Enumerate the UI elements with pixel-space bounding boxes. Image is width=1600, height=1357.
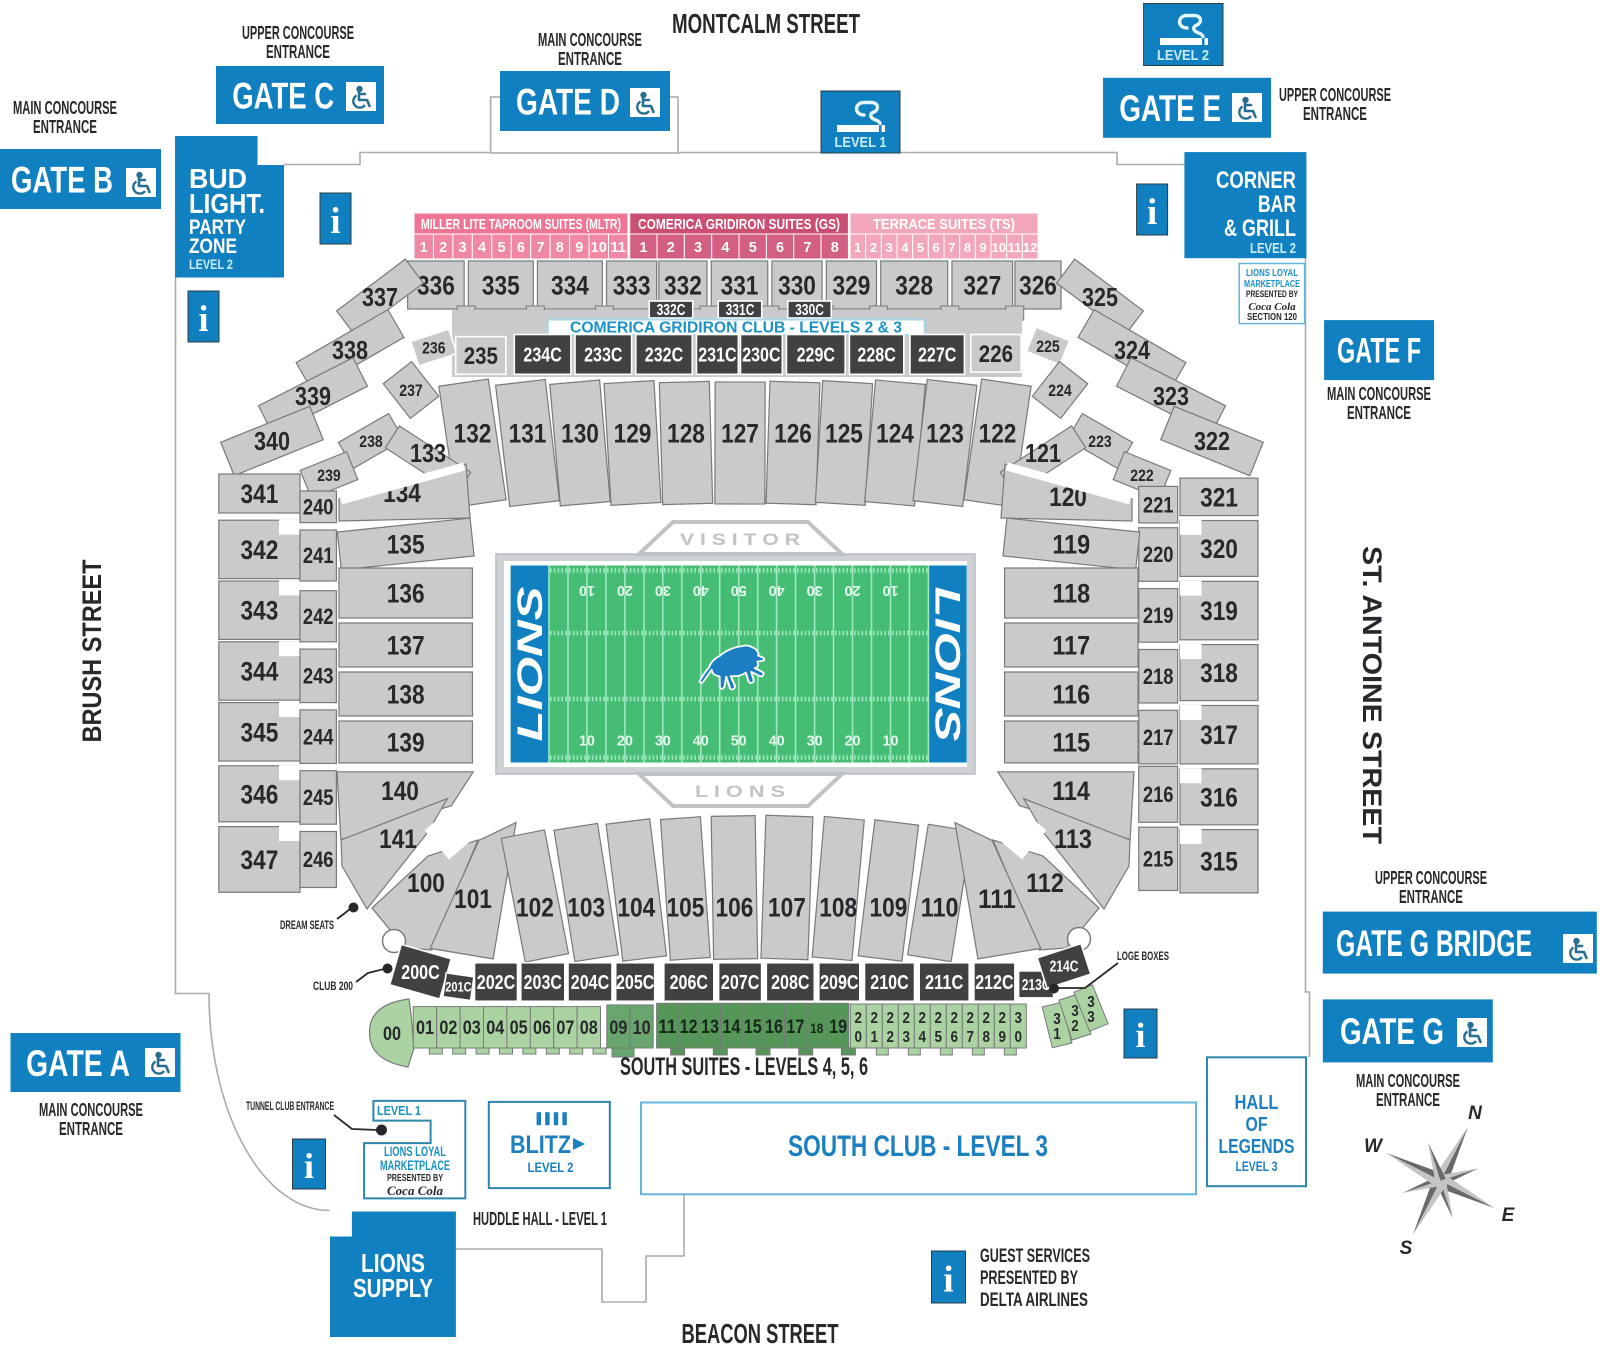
svg-text:105: 105 — [667, 892, 705, 922]
svg-text:12: 12 — [680, 1017, 698, 1038]
svg-text:3: 3 — [1015, 1010, 1023, 1027]
svg-text:9: 9 — [999, 1029, 1007, 1046]
svg-text:117: 117 — [1052, 630, 1090, 660]
svg-text:206C: 206C — [670, 971, 709, 994]
svg-text:325: 325 — [1082, 284, 1118, 312]
svg-text:UPPER CONCOURSE: UPPER CONCOURSE — [1375, 868, 1487, 888]
svg-text:30: 30 — [807, 733, 823, 750]
svg-text:CORNER: CORNER — [1216, 167, 1296, 194]
svg-text:BLITZ: BLITZ — [510, 1131, 571, 1159]
svg-text:BAR: BAR — [1258, 191, 1296, 218]
svg-text:5: 5 — [935, 1029, 943, 1046]
svg-text:329: 329 — [833, 270, 871, 300]
svg-text:233C: 233C — [584, 344, 623, 367]
svg-text:2: 2 — [855, 1010, 863, 1027]
svg-text:ENTRANCE: ENTRANCE — [266, 42, 330, 62]
svg-text:239: 239 — [317, 466, 340, 485]
svg-text:10: 10 — [579, 582, 595, 599]
svg-text:E: E — [1502, 1205, 1516, 1226]
svg-text:2: 2 — [919, 1010, 927, 1027]
svg-text:237: 237 — [399, 381, 422, 400]
svg-text:341: 341 — [241, 479, 279, 509]
svg-text:2: 2 — [667, 240, 675, 256]
svg-text:110: 110 — [921, 892, 959, 922]
svg-text:MONTCALM STREET: MONTCALM STREET — [672, 8, 860, 39]
svg-text:40: 40 — [693, 733, 709, 750]
svg-text:319: 319 — [1200, 596, 1238, 626]
svg-text:330: 330 — [778, 270, 816, 300]
svg-text:4: 4 — [901, 240, 909, 255]
svg-text:236: 236 — [422, 338, 445, 357]
svg-text:03: 03 — [463, 1018, 481, 1039]
svg-text:8: 8 — [831, 240, 839, 256]
svg-text:202C: 202C — [477, 971, 516, 994]
svg-text:103: 103 — [567, 892, 605, 922]
svg-text:2: 2 — [1071, 1018, 1079, 1035]
svg-text:336: 336 — [417, 270, 455, 300]
svg-text:20: 20 — [617, 733, 633, 750]
svg-text:1: 1 — [854, 240, 861, 255]
svg-text:10: 10 — [591, 240, 607, 256]
svg-text:0: 0 — [855, 1029, 863, 1046]
svg-text:245: 245 — [303, 785, 334, 810]
svg-text:2: 2 — [871, 1010, 879, 1027]
svg-text:2: 2 — [983, 1010, 991, 1027]
svg-text:MAIN CONCOURSE: MAIN CONCOURSE — [1356, 1071, 1460, 1091]
svg-text:209C: 209C — [820, 971, 859, 994]
svg-text:129: 129 — [614, 418, 652, 448]
svg-text:203C: 203C — [524, 971, 563, 994]
svg-text:108: 108 — [819, 892, 857, 922]
svg-text:LEVEL 2: LEVEL 2 — [1250, 240, 1296, 257]
svg-text:5: 5 — [497, 240, 505, 256]
svg-text:101: 101 — [454, 884, 492, 914]
svg-text:SUPPLY: SUPPLY — [353, 1273, 433, 1303]
svg-text:SOUTH SUITES - LEVELS 4, 5, 6: SOUTH SUITES - LEVELS 4, 5, 6 — [620, 1053, 868, 1081]
svg-text:LIONS LOYAL: LIONS LOYAL — [384, 1144, 446, 1159]
svg-text:235: 235 — [464, 343, 498, 370]
svg-text:130: 130 — [561, 418, 599, 448]
svg-text:i: i — [1136, 1016, 1146, 1055]
svg-text:230C: 230C — [742, 344, 781, 367]
svg-text:223: 223 — [1088, 432, 1111, 451]
svg-text:225: 225 — [1036, 337, 1059, 356]
svg-text:& GRILL: & GRILL — [1224, 215, 1296, 242]
svg-text:136: 136 — [387, 578, 425, 608]
svg-text:40: 40 — [769, 733, 785, 750]
svg-text:09: 09 — [609, 1018, 627, 1039]
svg-text:100: 100 — [407, 868, 445, 898]
svg-text:3: 3 — [1087, 1009, 1095, 1026]
svg-text:2: 2 — [967, 1010, 975, 1027]
svg-text:10: 10 — [579, 733, 595, 750]
svg-text:40: 40 — [693, 582, 709, 599]
svg-text:ENTRANCE: ENTRANCE — [1347, 403, 1411, 423]
svg-text:244: 244 — [303, 724, 334, 749]
svg-text:LIONS: LIONS — [927, 587, 966, 742]
svg-text:02: 02 — [439, 1018, 457, 1039]
svg-text:3: 3 — [459, 240, 467, 256]
svg-text:LEVEL 2: LEVEL 2 — [528, 1159, 574, 1175]
svg-text:MAIN CONCOURSE: MAIN CONCOURSE — [1327, 384, 1431, 404]
svg-text:316: 316 — [1200, 782, 1238, 812]
svg-text:LEVEL 1: LEVEL 1 — [835, 134, 887, 151]
svg-text:112: 112 — [1026, 868, 1064, 898]
svg-text:323: 323 — [1153, 383, 1189, 411]
svg-text:240: 240 — [303, 494, 334, 519]
svg-text:334: 334 — [551, 270, 589, 300]
svg-text:N: N — [1468, 1103, 1483, 1124]
svg-text:UPPER CONCOURSE: UPPER CONCOURSE — [242, 23, 354, 43]
svg-text:3: 3 — [694, 240, 702, 256]
svg-text:07: 07 — [556, 1018, 574, 1039]
svg-text:ENTRANCE: ENTRANCE — [1303, 104, 1367, 124]
svg-text:228C: 228C — [857, 344, 896, 367]
svg-text:LEVEL 1: LEVEL 1 — [377, 1103, 421, 1118]
svg-text:318: 318 — [1200, 658, 1238, 688]
svg-text:6: 6 — [776, 240, 784, 256]
svg-text:Coca Cola: Coca Cola — [387, 1183, 443, 1198]
svg-text:30: 30 — [655, 582, 671, 599]
svg-text:10: 10 — [882, 582, 898, 599]
svg-text:205C: 205C — [616, 971, 655, 994]
svg-text:8: 8 — [983, 1029, 991, 1046]
svg-text:315: 315 — [1200, 847, 1238, 877]
svg-text:322: 322 — [1194, 428, 1230, 456]
svg-text:10: 10 — [992, 240, 1006, 255]
svg-text:4: 4 — [721, 240, 729, 256]
svg-text:OF: OF — [1246, 1114, 1268, 1136]
svg-text:201C: 201C — [445, 979, 471, 995]
svg-text:40: 40 — [769, 582, 785, 599]
svg-text:121: 121 — [1025, 440, 1061, 468]
svg-text:COMERICA GRIDIRON SUITES (GS): COMERICA GRIDIRON SUITES (GS) — [638, 216, 840, 233]
svg-text:i: i — [304, 1146, 314, 1186]
svg-text:111: 111 — [978, 884, 1016, 914]
svg-text:331: 331 — [721, 270, 759, 300]
svg-text:214C: 214C — [1050, 958, 1079, 975]
svg-text:MAIN CONCOURSE: MAIN CONCOURSE — [538, 30, 642, 50]
svg-text:125: 125 — [825, 418, 863, 448]
svg-text:232C: 232C — [645, 344, 684, 367]
svg-text:2: 2 — [887, 1010, 895, 1027]
svg-text:9: 9 — [575, 240, 583, 256]
svg-text:241: 241 — [303, 543, 334, 568]
svg-text:30: 30 — [655, 733, 671, 750]
svg-text:20: 20 — [845, 582, 861, 599]
svg-text:7: 7 — [967, 1029, 975, 1046]
svg-text:13: 13 — [701, 1017, 719, 1038]
svg-text:3: 3 — [886, 240, 893, 255]
svg-text:220: 220 — [1143, 542, 1174, 567]
svg-text:140: 140 — [381, 776, 419, 806]
svg-text:210C: 210C — [870, 971, 909, 994]
svg-text:8: 8 — [964, 240, 971, 255]
svg-text:1: 1 — [420, 240, 428, 256]
svg-text:CLUB 200: CLUB 200 — [313, 979, 353, 993]
svg-text:346: 346 — [241, 779, 279, 809]
svg-text:211C: 211C — [925, 971, 964, 994]
svg-text:5: 5 — [749, 240, 757, 256]
svg-text:107: 107 — [768, 892, 806, 922]
svg-text:i: i — [198, 298, 208, 339]
svg-text:340: 340 — [254, 428, 290, 456]
svg-text:131: 131 — [509, 418, 547, 448]
svg-text:243: 243 — [303, 664, 334, 689]
svg-text:GATE B: GATE B — [11, 159, 113, 200]
svg-text:116: 116 — [1052, 679, 1090, 709]
svg-text:GATE F: GATE F — [1337, 332, 1421, 371]
svg-text:i: i — [1147, 191, 1157, 232]
svg-text:221: 221 — [1143, 492, 1174, 517]
svg-text:2: 2 — [903, 1010, 911, 1027]
svg-text:PRESENTED BY: PRESENTED BY — [1246, 289, 1298, 300]
svg-text:347: 347 — [241, 845, 279, 875]
svg-text:00: 00 — [383, 1024, 401, 1045]
svg-text:PRESENTED BY: PRESENTED BY — [980, 1268, 1078, 1289]
svg-text:L I O N S: L I O N S — [695, 782, 785, 801]
svg-text:MAIN CONCOURSE: MAIN CONCOURSE — [39, 1100, 143, 1120]
svg-text:344: 344 — [241, 656, 279, 686]
svg-text:50: 50 — [731, 733, 747, 750]
svg-text:6: 6 — [517, 240, 525, 256]
svg-text:30: 30 — [807, 582, 823, 599]
svg-text:20: 20 — [845, 733, 861, 750]
svg-text:BRUSH STREET: BRUSH STREET — [77, 559, 107, 742]
svg-text:5: 5 — [917, 240, 924, 255]
svg-text:HALL: HALL — [1235, 1092, 1279, 1114]
svg-text:321: 321 — [1200, 482, 1238, 512]
svg-text:3: 3 — [903, 1029, 911, 1046]
svg-text:01: 01 — [416, 1018, 434, 1039]
svg-text:W: W — [1364, 1136, 1384, 1157]
svg-text:138: 138 — [387, 679, 425, 709]
svg-text:ENTRANCE: ENTRANCE — [558, 49, 622, 69]
svg-text:UPPER CONCOURSE: UPPER CONCOURSE — [1279, 85, 1391, 105]
svg-text:212C: 212C — [975, 971, 1014, 994]
svg-text:222: 222 — [1130, 466, 1153, 485]
svg-text:LOGE BOXES: LOGE BOXES — [1117, 949, 1169, 963]
svg-text:339: 339 — [295, 383, 331, 411]
svg-text:226: 226 — [979, 341, 1013, 368]
svg-text:ENTRANCE: ENTRANCE — [1376, 1090, 1440, 1110]
svg-text:4: 4 — [919, 1029, 927, 1046]
svg-text:246: 246 — [303, 847, 334, 872]
svg-text:200C: 200C — [401, 961, 440, 984]
svg-text:i: i — [943, 1260, 953, 1301]
svg-text:11: 11 — [658, 1017, 676, 1038]
svg-text:332C: 332C — [657, 302, 686, 319]
svg-text:2: 2 — [999, 1010, 1007, 1027]
svg-text:LEVEL 2: LEVEL 2 — [189, 256, 233, 272]
svg-text:7: 7 — [803, 240, 811, 256]
svg-text:224: 224 — [1048, 381, 1072, 400]
svg-text:50: 50 — [731, 582, 747, 599]
svg-text:2: 2 — [870, 240, 877, 255]
svg-text:137: 137 — [387, 630, 425, 660]
svg-text:06: 06 — [533, 1018, 551, 1039]
svg-text:217: 217 — [1143, 725, 1174, 750]
svg-text:GATE A: GATE A — [26, 1043, 130, 1084]
svg-text:BEACON STREET: BEACON STREET — [682, 1318, 839, 1349]
svg-text:0: 0 — [1015, 1029, 1023, 1046]
svg-text:TUNNEL CLUB ENTRANCE: TUNNEL CLUB ENTRANCE — [246, 1099, 334, 1113]
svg-text:19: 19 — [829, 1017, 847, 1038]
svg-text:15: 15 — [744, 1017, 762, 1038]
svg-text:128: 128 — [667, 418, 705, 448]
svg-text:204C: 204C — [571, 971, 610, 994]
svg-text:109: 109 — [870, 892, 908, 922]
svg-text:ENTRANCE: ENTRANCE — [59, 1119, 123, 1139]
svg-text:231C: 231C — [698, 344, 737, 367]
svg-text:345: 345 — [241, 717, 279, 747]
svg-text:215: 215 — [1143, 847, 1174, 872]
svg-text:332: 332 — [664, 270, 702, 300]
svg-text:GATE E: GATE E — [1119, 88, 1221, 129]
svg-text:1: 1 — [871, 1029, 879, 1046]
svg-text:119: 119 — [1052, 529, 1090, 559]
svg-text:127: 127 — [721, 418, 759, 448]
svg-text:14: 14 — [722, 1017, 740, 1038]
svg-text:320: 320 — [1200, 534, 1238, 564]
svg-text:123: 123 — [926, 418, 964, 448]
svg-text:LEVEL 2: LEVEL 2 — [1157, 47, 1209, 64]
svg-text:218: 218 — [1143, 664, 1174, 689]
svg-text:227C: 227C — [918, 344, 957, 367]
svg-text:MILLER LITE TAPROOM SUITES (ML: MILLER LITE TAPROOM SUITES (MLTR) — [421, 216, 621, 233]
svg-text:133: 133 — [410, 440, 446, 468]
svg-text:328: 328 — [895, 270, 933, 300]
svg-text:106: 106 — [716, 892, 754, 922]
svg-text:6: 6 — [933, 240, 940, 255]
svg-text:LEVEL 3: LEVEL 3 — [1236, 1159, 1278, 1174]
svg-text:7: 7 — [948, 240, 955, 255]
svg-text:122: 122 — [979, 418, 1017, 448]
svg-text:326: 326 — [1019, 270, 1057, 300]
svg-text:TERRACE SUITES (TS): TERRACE SUITES (TS) — [873, 216, 1015, 233]
svg-text:2: 2 — [935, 1010, 943, 1027]
svg-text:08: 08 — [580, 1018, 598, 1039]
svg-text:05: 05 — [510, 1018, 528, 1039]
svg-text:V I S I T O R: V I S I T O R — [680, 530, 800, 549]
svg-text:330C: 330C — [795, 302, 824, 319]
svg-text:GATE D: GATE D — [516, 81, 620, 122]
svg-text:132: 132 — [454, 418, 492, 448]
svg-text:17: 17 — [786, 1017, 804, 1038]
svg-text:2: 2 — [439, 240, 447, 256]
svg-text:2: 2 — [887, 1029, 895, 1046]
svg-text:SOUTH CLUB - LEVEL 3: SOUTH CLUB - LEVEL 3 — [788, 1130, 1048, 1163]
svg-text:208C: 208C — [771, 971, 810, 994]
svg-text:20: 20 — [617, 582, 633, 599]
svg-text:114: 114 — [1052, 776, 1090, 806]
svg-text:DREAM SEATS: DREAM SEATS — [280, 918, 334, 932]
svg-text:6: 6 — [951, 1029, 959, 1046]
svg-text:LIONS: LIONS — [511, 587, 550, 742]
svg-text:GATE G: GATE G — [1340, 1011, 1444, 1052]
svg-text:139: 139 — [387, 727, 425, 757]
svg-text:242: 242 — [303, 604, 334, 629]
svg-text:8: 8 — [556, 240, 564, 256]
svg-text:126: 126 — [774, 418, 812, 448]
svg-text:1: 1 — [1053, 1026, 1061, 1043]
svg-text:SECTION 120: SECTION 120 — [1247, 311, 1297, 323]
svg-text:317: 317 — [1200, 720, 1238, 750]
svg-text:216: 216 — [1143, 782, 1174, 807]
svg-text:238: 238 — [359, 432, 382, 451]
svg-text:7: 7 — [536, 240, 544, 256]
svg-text:1: 1 — [639, 240, 647, 256]
svg-text:GUEST SERVICES: GUEST SERVICES — [980, 1246, 1090, 1267]
svg-text:GATE G BRIDGE: GATE G BRIDGE — [1336, 923, 1532, 964]
svg-text:333: 333 — [613, 270, 651, 300]
svg-text:327: 327 — [963, 270, 1001, 300]
svg-text:16: 16 — [765, 1017, 783, 1038]
svg-text:12: 12 — [1023, 240, 1037, 255]
svg-text:MARKETPLACE: MARKETPLACE — [380, 1158, 450, 1173]
svg-text:343: 343 — [241, 596, 279, 626]
svg-text:331C: 331C — [726, 302, 755, 319]
svg-text:04: 04 — [486, 1018, 504, 1039]
svg-text:LEGENDS: LEGENDS — [1219, 1136, 1295, 1158]
svg-text:i: i — [330, 200, 340, 241]
svg-text:207C: 207C — [721, 971, 760, 994]
svg-text:ZONE: ZONE — [189, 234, 237, 258]
svg-text:10: 10 — [633, 1018, 651, 1039]
svg-text:219: 219 — [1143, 603, 1174, 628]
svg-text:2: 2 — [951, 1010, 959, 1027]
svg-text:337: 337 — [362, 284, 398, 312]
svg-text:118: 118 — [1052, 578, 1090, 608]
svg-text:11: 11 — [1008, 240, 1022, 255]
svg-text:234C: 234C — [523, 344, 562, 367]
svg-text:11: 11 — [611, 240, 626, 256]
svg-text:10: 10 — [882, 733, 898, 750]
svg-text:115: 115 — [1052, 727, 1090, 757]
svg-text:ENTRANCE: ENTRANCE — [1399, 887, 1463, 907]
svg-text:9: 9 — [980, 240, 987, 255]
svg-text:ST. ANTOINE STREET: ST. ANTOINE STREET — [1357, 546, 1387, 845]
svg-text:4: 4 — [478, 240, 486, 256]
svg-text:HUDDLE HALL - LEVEL 1: HUDDLE HALL - LEVEL 1 — [473, 1208, 607, 1229]
svg-text:124: 124 — [876, 418, 914, 448]
svg-text:DELTA AIRLINES: DELTA AIRLINES — [980, 1290, 1088, 1311]
svg-text:MAIN CONCOURSE: MAIN CONCOURSE — [13, 98, 117, 118]
svg-text:GATE C: GATE C — [232, 75, 334, 116]
svg-text:229C: 229C — [797, 344, 836, 367]
svg-text:113: 113 — [1054, 824, 1092, 854]
svg-text:S: S — [1400, 1238, 1413, 1259]
svg-text:ENTRANCE: ENTRANCE — [33, 117, 97, 137]
svg-text:102: 102 — [516, 892, 554, 922]
svg-text:104: 104 — [617, 892, 655, 922]
svg-text:141: 141 — [379, 824, 417, 854]
svg-text:18: 18 — [810, 1020, 823, 1036]
svg-text:335: 335 — [482, 270, 520, 300]
svg-text:135: 135 — [387, 529, 425, 559]
svg-text:342: 342 — [241, 535, 279, 565]
